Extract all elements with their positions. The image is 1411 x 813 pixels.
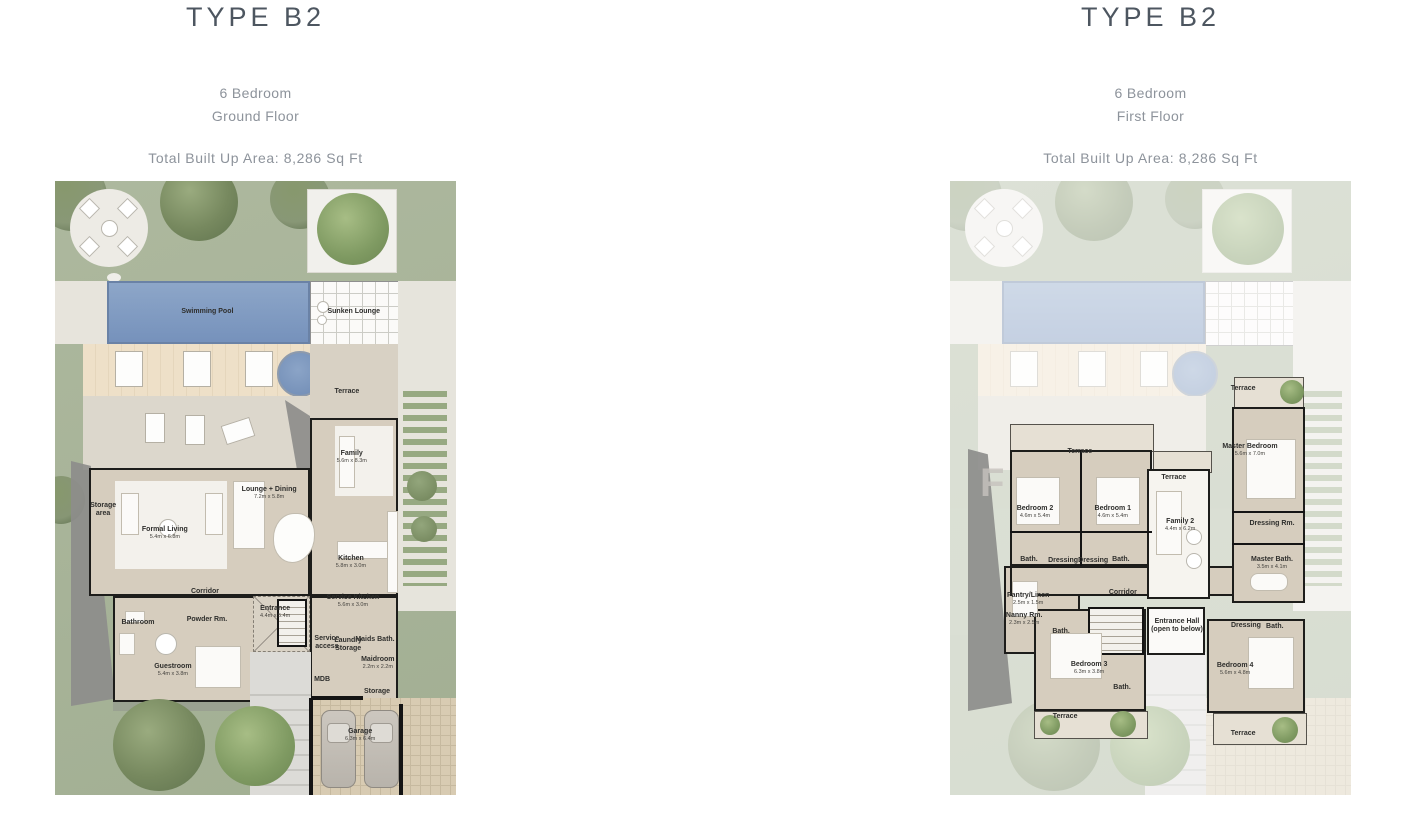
room-label: Lounge + Dining7.2m x 5.8m: [242, 486, 297, 500]
room-label: Dressing: [1231, 622, 1261, 630]
bedroom-count: 6 Bedroom: [950, 82, 1351, 105]
room-label: Bath.: [1112, 556, 1130, 564]
room-labels-layer: Swimming PoolSunken LoungeTerraceFamily5…: [55, 181, 456, 795]
built-up-area: Total Built Up Area: 8,286 Sq Ft: [950, 150, 1351, 166]
built-up-area: Total Built Up Area: 8,286 Sq Ft: [55, 150, 456, 166]
panel-subtitle: 6 Bedroom First Floor: [950, 82, 1351, 128]
room-labels-layer: TerraceMaster Bedroom5.6m x 7.0mTerraceB…: [950, 181, 1351, 795]
room-label: Sunken Lounge: [327, 308, 380, 316]
room-label: Bath.: [1052, 628, 1070, 636]
room-label: Dressing Rm.: [1249, 520, 1294, 528]
room-label: Nanny Rm.2.3m x 2.5m: [1006, 612, 1043, 626]
room-label: Family5.6m x 8.3m: [337, 450, 367, 464]
room-label: Terrace: [1068, 448, 1093, 456]
room-label: Terrace: [1231, 730, 1256, 738]
room-label: Master Bath.3.5m x 4.1m: [1251, 556, 1293, 570]
room-label: Terrace: [1161, 474, 1186, 482]
room-label: Bedroom 14.6m x 5.4m: [1095, 505, 1132, 519]
room-label: Kitchen5.8m x 3.0m: [336, 555, 366, 569]
room-label: Bathroom: [121, 619, 154, 627]
room-label: Maidroom2.2m x 2.2m: [361, 656, 394, 670]
room-label: Swimming Pool: [181, 308, 233, 316]
room-label: Garage6.3m x 6.4m: [345, 728, 375, 742]
floor-name: Ground Floor: [55, 105, 456, 128]
panel-title: TYPE B2: [950, 2, 1351, 33]
room-label: Entrance4.4m x 5.4m: [260, 605, 290, 619]
room-label: Bedroom 36.3m x 3.8m: [1071, 661, 1108, 675]
room-label: Pantry/Linen2.5m x 1.5m: [1007, 592, 1049, 606]
room-label: Master Bedroom5.6m x 7.0m: [1222, 443, 1277, 457]
room-label: Bath.: [1113, 684, 1131, 692]
room-label: Powder Rm.: [187, 616, 227, 624]
room-label: Maids Bath.: [355, 636, 394, 644]
room-label: Bath.: [1020, 556, 1038, 564]
room-label: Bedroom 45.6m x 4.8m: [1217, 662, 1254, 676]
panel-title: TYPE B2: [55, 2, 456, 33]
room-label: Terrace: [1231, 385, 1256, 393]
room-label: Entrance Hall(open to below): [1151, 618, 1203, 634]
room-label: Formal Living5.4m x 6.8m: [142, 526, 188, 540]
room-label: Terrace: [335, 388, 360, 396]
panel-subtitle: 6 Bedroom Ground Floor: [55, 82, 456, 128]
room-label: Service Kitchen5.6m x 3.0m: [327, 594, 380, 608]
room-label: Terrace: [1053, 713, 1078, 721]
room-label: Storage: [364, 688, 390, 696]
room-label: MDB: [314, 676, 330, 684]
room-label: Family 24.4m x 6.2m: [1165, 518, 1195, 532]
room-label: Corridor: [191, 588, 219, 596]
first-floor-plan: F: [950, 181, 1351, 795]
room-label: Bedroom 24.6m x 5.4m: [1017, 505, 1054, 519]
brochure-page: TYPE B2 6 Bedroom Ground Floor Total Bui…: [0, 0, 1411, 813]
room-label: Dressing: [1048, 557, 1078, 565]
bedroom-count: 6 Bedroom: [55, 82, 456, 105]
room-label: Guestroom5.4m x 3.8m: [154, 663, 191, 677]
room-label: Storagearea: [90, 502, 116, 518]
room-label: Bath.: [1266, 623, 1284, 631]
room-label: Dressing: [1078, 557, 1108, 565]
floor-name: First Floor: [950, 105, 1351, 128]
room-label: Corridor: [1109, 589, 1137, 597]
ground-floor-plan: Swimming PoolSunken LoungeTerraceFamily5…: [55, 181, 456, 795]
